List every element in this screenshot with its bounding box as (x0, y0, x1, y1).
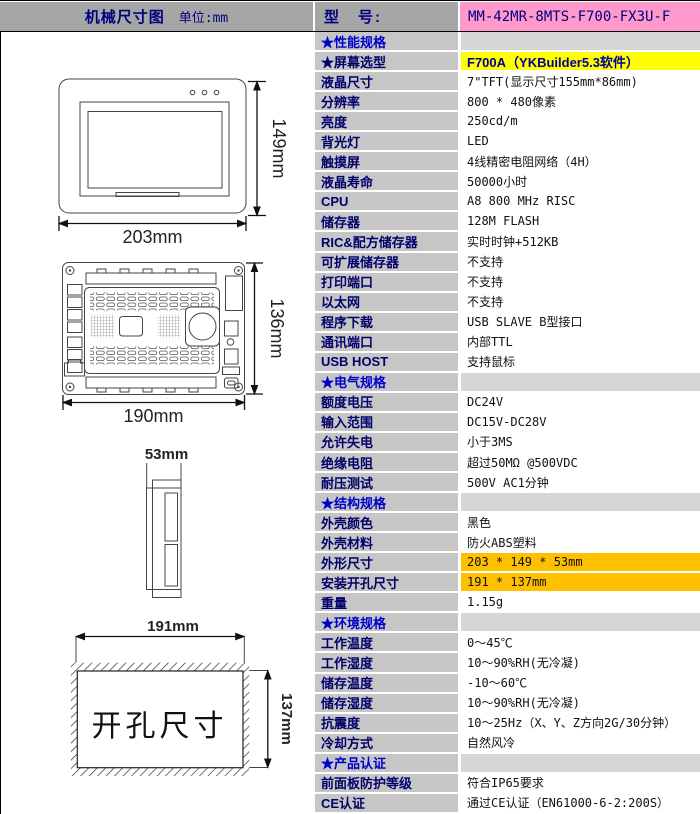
spec-row: 额度电压DC24V (315, 393, 700, 413)
back-vent-bottom (90, 347, 214, 365)
spec-row: ★产品认证 (315, 754, 700, 774)
side-bottom-cap (153, 590, 182, 598)
side-depth-label: 53mm (145, 446, 188, 463)
spec-row: 外壳材料防火ABS塑料 (315, 533, 700, 553)
spec-row: 分辨率800 * 480像素 (315, 92, 700, 112)
spec-row: 储存温度-10～60℃ (315, 674, 700, 694)
spec-label-cell: ★环境规格 (315, 613, 458, 633)
spec-label-cell: 冷却方式 (315, 734, 458, 754)
spec-label-cell: 触摸屏 (315, 152, 458, 172)
spec-row: 触摸屏4线精密电阻网络（4H） (315, 152, 700, 172)
spec-value-cell: 不支持 (458, 273, 700, 293)
spec-value-cell: 800 * 480像素 (458, 92, 700, 112)
spec-value-cell: 10～25Hz（X、Y、Z方向2G/30分钟） (458, 714, 700, 734)
front-height-dimension: 149mm (248, 82, 289, 216)
spec-label-cell: 可扩展储存器 (315, 253, 458, 273)
spec-value-cell: 0～45℃ (458, 633, 700, 653)
model-number: MM-42MR-8MTS-F700-FX3U-F (468, 9, 670, 25)
back-center-plate (120, 317, 143, 337)
spec-label-cell: 输入范围 (315, 413, 458, 433)
spec-value-cell: 自然风冷 (458, 734, 700, 754)
spec-row: ★屏幕选型F700A（YKBuilder5.3软件） (315, 52, 700, 72)
spec-label-cell: 亮度 (315, 112, 458, 132)
spec-value-cell: DC15V-DC28V (458, 413, 700, 433)
spec-row: 前面板防护等级符合IP65要求 (315, 774, 700, 794)
spec-value-cell: A8 800 MHz RISC (458, 192, 700, 212)
back-bottom-mount-strip (86, 377, 216, 392)
spec-value-cell: 1.15g (458, 593, 700, 613)
spec-value-cell: 通过CE认证（EN61000-6-2:200S） (458, 794, 700, 814)
front-screen (88, 112, 222, 189)
spec-row: ★环境规格 (315, 613, 700, 633)
spec-label-cell: USB HOST (315, 353, 458, 373)
spec-value-cell: 250cd/m (458, 112, 700, 132)
spec-row: 输入范围DC15V-DC28V (315, 413, 700, 433)
spec-label-cell: 打印端口 (315, 273, 458, 293)
spec-label-cell: 安装开孔尺寸 (315, 573, 458, 593)
side-slot-lower (165, 545, 178, 587)
spec-value-cell: 不支持 (458, 253, 700, 273)
cutout-width-dimension (76, 637, 244, 664)
spec-value-cell (458, 493, 700, 513)
spec-value-cell (458, 754, 700, 774)
cutout-height-dimension: 137mm (249, 671, 295, 768)
spec-label-cell: 分辨率 (315, 92, 458, 112)
spec-row: 工作湿度10～90%RH(无冷凝) (315, 653, 700, 673)
spec-row: 冷却方式自然风冷 (315, 734, 700, 754)
spec-value-cell: 50000小时 (458, 172, 700, 192)
spec-row: 打印端口不支持 (315, 273, 700, 293)
back-battery-holder (186, 307, 220, 346)
spec-row: 抗震度10～25Hz（X、Y、Z方向2G/30分钟） (315, 714, 700, 734)
spec-label-cell: 额度电压 (315, 393, 458, 413)
spec-row: 背光灯LED (315, 132, 700, 152)
spec-label-cell: 工作温度 (315, 633, 458, 653)
mechanical-drawings: 149mm 203mm (1, 32, 314, 814)
spec-row: 液晶尺寸7"TFT(显示尺寸155mm*86mm) (315, 72, 700, 92)
spec-label-cell: CPU (315, 192, 458, 212)
spec-row: 绝缘电阻超过50MΩ @500VDC (315, 453, 700, 473)
mechanical-dimensions-title: 机械尺寸图 (85, 6, 165, 27)
spec-value-cell: 防火ABS塑料 (458, 533, 700, 553)
spec-row: 安装开孔尺寸191 * 137mm (315, 573, 700, 593)
front-width-dimension: 203mm (59, 216, 246, 247)
back-top-mount-strip (86, 269, 216, 284)
spec-label-cell: 耐压测试 (315, 473, 458, 493)
back-view-drawing: 136mm 190mm (63, 263, 288, 427)
spec-value-cell: 10～90%RH(无冷凝) (458, 653, 700, 673)
spec-value-cell: DC24V (458, 393, 700, 413)
spec-value-cell: 黑色 (458, 513, 700, 533)
spec-label-cell: ★电气规格 (315, 373, 458, 393)
spec-value-cell: 实时时钟+512KB (458, 232, 700, 252)
spec-row: ★性能规格 (315, 32, 700, 52)
spec-value-cell: 小于3MS (458, 433, 700, 453)
back-side-connectors (223, 276, 243, 388)
mechanical-dimensions-header: 机械尺寸图 单位:mm (0, 2, 313, 31)
spec-row: 以太网不支持 (315, 293, 700, 313)
spec-value-cell: F700A（YKBuilder5.3软件） (458, 52, 700, 72)
spec-row: 重量1.15g (315, 593, 700, 613)
spec-value-cell: 128M FLASH (458, 212, 700, 232)
spec-value-cell: 191 * 137mm (458, 573, 700, 593)
model-label-cell: 型 号: (315, 2, 458, 31)
spec-label-cell: ★屏幕选型 (315, 52, 458, 72)
cutout-width-label: 191mm (147, 618, 199, 635)
back-height-label: 136mm (267, 298, 287, 358)
spec-label-cell: 外形尺寸 (315, 553, 458, 573)
spec-value-cell (458, 373, 700, 393)
side-top-cap (153, 480, 182, 488)
spec-label-cell: 允许失电 (315, 433, 458, 453)
drawing-panel: 149mm 203mm (0, 32, 313, 814)
side-flange (147, 488, 153, 590)
front-width-label: 203mm (122, 227, 182, 247)
spec-label-cell: 抗震度 (315, 714, 458, 734)
cutout-drawing: 191mm 开孔尺寸 137mm (71, 618, 295, 776)
spec-label-cell: 储存湿度 (315, 694, 458, 714)
spec-label-cell: 程序下载 (315, 313, 458, 333)
back-height-dimension: 136mm (246, 263, 287, 394)
spec-label-cell: ★性能规格 (315, 32, 458, 52)
spec-value-cell (458, 32, 700, 52)
spec-row: 耐压测试500V AC1分钟 (315, 473, 700, 493)
model-value-cell: MM-42MR-8MTS-F700-FX3U-F (460, 2, 700, 31)
spec-row: 储存湿度10～90%RH(无冷凝) (315, 694, 700, 714)
spec-label-cell: 液晶寿命 (315, 172, 458, 192)
spec-label-cell: 储存温度 (315, 674, 458, 694)
spec-value-cell: 4线精密电阻网络（4H） (458, 152, 700, 172)
spec-row: 储存器128M FLASH (315, 212, 700, 232)
spec-row: ★结构规格 (315, 493, 700, 513)
spec-value-cell: 符合IP65要求 (458, 774, 700, 794)
spec-value-cell (458, 613, 700, 633)
spec-label-cell: ★结构规格 (315, 493, 458, 513)
spec-table: ★性能规格★屏幕选型F700A（YKBuilder5.3软件）液晶尺寸7"TFT… (315, 32, 700, 814)
spec-sheet-page: 机械尺寸图 单位:mm 型 号: MM-42MR-8MTS-F700-FX3U-… (0, 0, 700, 814)
back-pad-right (158, 315, 181, 338)
side-slot-upper (165, 493, 178, 541)
spec-label-cell: RIC&配方储存器 (315, 232, 458, 252)
spec-row: ★电气规格 (315, 373, 700, 393)
side-view-drawing: 53mm (145, 446, 188, 598)
spec-row: 工作温度0～45℃ (315, 633, 700, 653)
spec-value-cell: 203 * 149 * 53mm (458, 553, 700, 573)
spec-value-cell: 超过50MΩ @500VDC (458, 453, 700, 473)
spec-value-cell: 500V AC1分钟 (458, 473, 700, 493)
spec-label-cell: 绝缘电阻 (315, 453, 458, 473)
spec-row: CE认证通过CE认证（EN61000-6-2:200S） (315, 794, 700, 814)
spec-row: USB HOST支持鼠标 (315, 353, 700, 373)
side-body (153, 488, 182, 590)
spec-label-cell: 储存器 (315, 212, 458, 232)
spec-label-cell: 背光灯 (315, 132, 458, 152)
spec-row: 液晶寿命50000小时 (315, 172, 700, 192)
spec-value-cell: -10～60℃ (458, 674, 700, 694)
spec-value-cell: 10～90%RH(无冷凝) (458, 694, 700, 714)
spec-label-cell: 液晶尺寸 (315, 72, 458, 92)
back-pad-left (91, 315, 114, 338)
spec-value-cell: 内部TTL (458, 333, 700, 353)
front-height-label: 149mm (269, 118, 289, 178)
spec-row: 外壳颜色黑色 (315, 513, 700, 533)
spec-row: RIC&配方储存器实时时钟+512KB (315, 232, 700, 252)
spec-label-cell: ★产品认证 (315, 754, 458, 774)
spec-label-cell: 前面板防护等级 (315, 774, 458, 794)
spec-value-cell: 7"TFT(显示尺寸155mm*86mm) (458, 72, 700, 92)
spec-row: 通讯端口内部TTL (315, 333, 700, 353)
model-label: 型 号: (324, 6, 382, 27)
header-band: 机械尺寸图 单位:mm 型 号: MM-42MR-8MTS-F700-FX3U-… (0, 2, 700, 32)
spec-label-cell: 通讯端口 (315, 333, 458, 353)
back-width-dimension: 190mm (63, 395, 245, 426)
spec-label-cell: CE认证 (315, 794, 458, 814)
spec-row: CPUA8 800 MHz RISC (315, 192, 700, 212)
spec-row: 亮度250cd/m (315, 112, 700, 132)
spec-value-cell: 支持鼠标 (458, 353, 700, 373)
back-width-label: 190mm (123, 406, 183, 426)
spec-row: 外形尺寸203 * 149 * 53mm (315, 553, 700, 573)
spec-label-cell: 工作湿度 (315, 653, 458, 673)
cutout-caption: 开孔尺寸 (92, 710, 228, 743)
spec-row: 程序下载USB SLAVE B型接口 (315, 313, 700, 333)
spec-value-cell: 不支持 (458, 293, 700, 313)
front-led-dots (190, 90, 219, 95)
spec-row: 可扩展储存器不支持 (315, 253, 700, 273)
spec-value-cell: LED (458, 132, 700, 152)
unit-label: 单位:mm (179, 7, 228, 26)
spec-label-cell: 重量 (315, 593, 458, 613)
spec-label-cell: 外壳颜色 (315, 513, 458, 533)
cutout-height-label: 137mm (278, 693, 295, 745)
spec-row: 允许失电小于3MS (315, 433, 700, 453)
spec-label-cell: 以太网 (315, 293, 458, 313)
front-view-drawing: 149mm 203mm (59, 79, 289, 247)
front-bezel (80, 102, 229, 196)
spec-label-cell: 外壳材料 (315, 533, 458, 553)
spec-value-cell: USB SLAVE B型接口 (458, 313, 700, 333)
